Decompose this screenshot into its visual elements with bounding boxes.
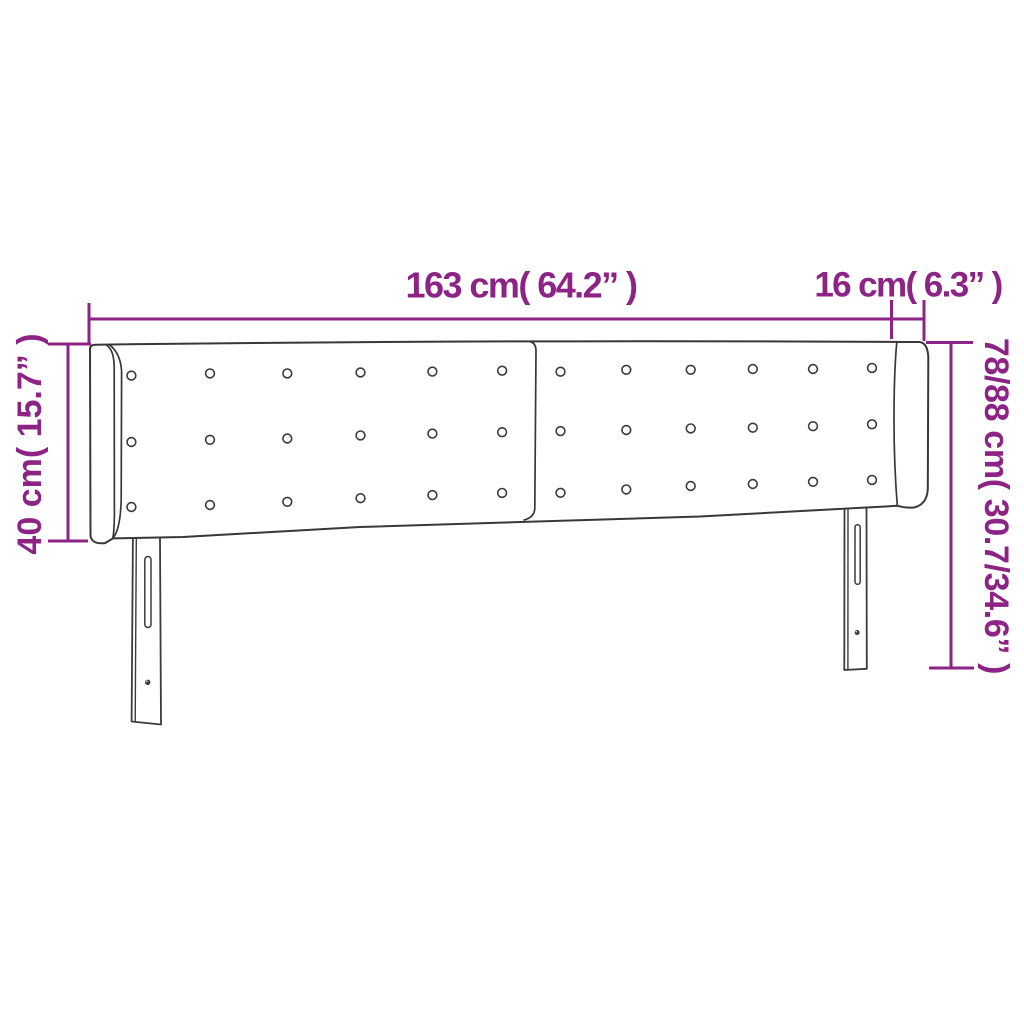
svg-text:40 cm( 15.7” ): 40 cm( 15.7” ) (11, 333, 49, 554)
svg-text:163 cm( 64.2” ): 163 cm( 64.2” ) (406, 265, 637, 306)
svg-text:78/88 cm( 30.7/34.6” ): 78/88 cm( 30.7/34.6” ) (977, 338, 1015, 674)
svg-text:16 cm( 6.3” ): 16 cm( 6.3” ) (814, 266, 1001, 305)
